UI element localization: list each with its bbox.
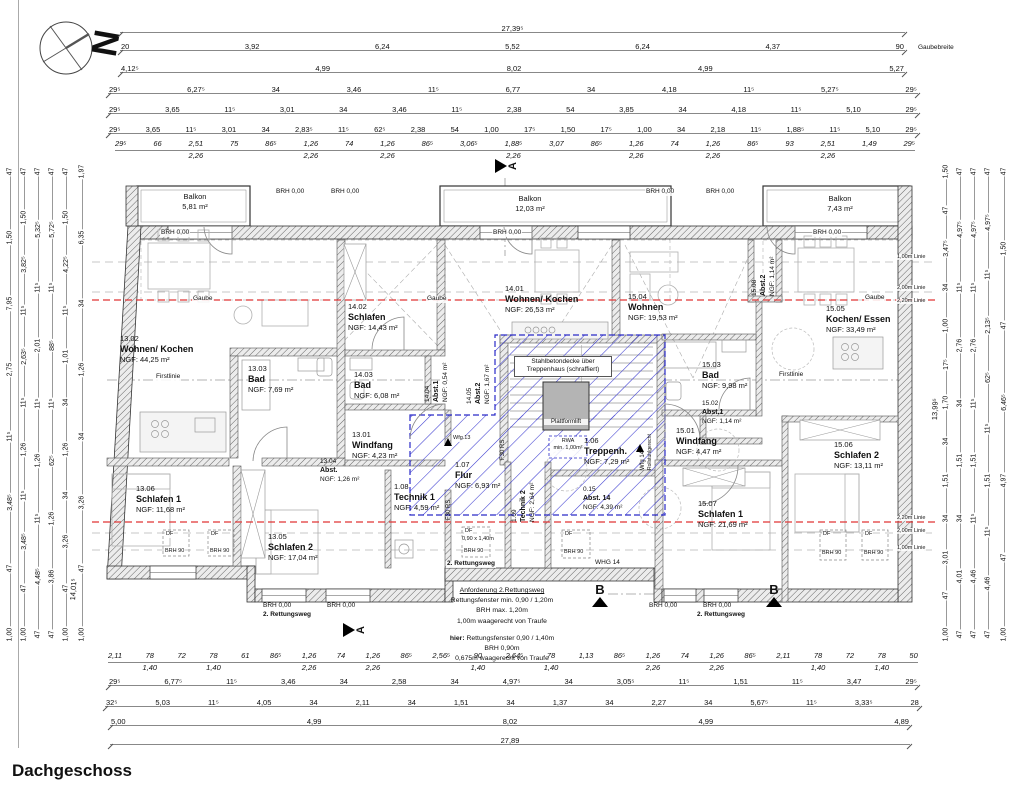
room-label-1506: 15.06Schlafen 2NGF: 13,11 m² bbox=[834, 440, 883, 471]
rettungsweg-label: 2. Rettungsweg bbox=[446, 561, 496, 568]
dim-col-left-1: 471,507,952,7511⁵3,48⁵471,00 bbox=[4, 168, 16, 638]
brh90-label: BRH 90 bbox=[563, 550, 584, 556]
df-size-label: 0,90 x 1,40m bbox=[461, 537, 495, 543]
firstlinie-tag: Firstlinie bbox=[155, 374, 181, 381]
room-label-1306: 13.06Schlafen 1NGF: 11,68 m² bbox=[136, 484, 185, 515]
section-triangle-icon bbox=[495, 159, 507, 173]
brh-tag: BRH 0,00 bbox=[492, 230, 522, 237]
dim-row-bottom-3: 32⁵5,0311⁵4,05342,11341,51341,37342,2734… bbox=[105, 695, 920, 707]
room-label-1504: 15.04WohnenNGF: 19,53 m² bbox=[628, 292, 678, 323]
whg14-label: WHG 14 bbox=[594, 560, 621, 567]
dim-row-top-3: 4,12⁵4,998,024,995,27 bbox=[120, 61, 905, 73]
room-label-technik2: 1.09Technik 2NGF: 2,64 m² bbox=[511, 483, 537, 522]
brh-tag: BRH 0,00 bbox=[645, 189, 675, 196]
brh90-label: BRH 90 bbox=[209, 549, 230, 555]
dim-row-top-overall: 27,39⁵ bbox=[120, 21, 905, 33]
brh-tag: BRH 0,00 bbox=[275, 189, 305, 196]
section-triangle-icon bbox=[766, 597, 782, 607]
brh-tag: BRH 0,00 bbox=[262, 603, 292, 610]
rettungsweg-label: 2. Rettungsweg bbox=[696, 612, 746, 619]
dim-col-right-1: 1,50473,47⁵341,0017⁵1,70341,51343,01471,… bbox=[940, 168, 952, 638]
df-label: DF bbox=[165, 532, 174, 538]
section-marker-a-bottom: A bbox=[343, 623, 365, 637]
floorplan-drawing bbox=[90, 175, 940, 650]
brh90-label: BRH 90 bbox=[164, 549, 185, 555]
brh-tag: BRH 0,00 bbox=[812, 230, 842, 237]
brh90-label: BRH 90 bbox=[863, 551, 884, 557]
brh-tag: BRH 0,00 bbox=[326, 603, 356, 610]
room-label-technik1: 1.08Technik 1NGF: 4,59 m² bbox=[394, 482, 439, 513]
dim-col-right-3: 474,97⁵11⁵2,7611⁵1,5111⁵4,4647 bbox=[968, 168, 980, 638]
room-label-1404: 14.04Abst.1NGF: 0,54 m² bbox=[424, 363, 450, 402]
room-label-1508: 15.08Abst.2NGF: 1,14 m² bbox=[751, 257, 777, 296]
dim-row-top-7: 29⁵662,512,267586⁵1,262,26741,262,2686⁵3… bbox=[115, 140, 915, 160]
dim-col-left-4: 475,72⁵11⁵88⁵11⁵62⁵1,263,8647 bbox=[46, 168, 58, 638]
room-label-abst14: 0.15Abst. 14NGF: 4,39 m² bbox=[583, 486, 622, 512]
df-label: DF bbox=[564, 532, 573, 538]
linie-100-label: 1,00m Linie bbox=[896, 545, 926, 551]
dim-row-top-6: 29⁵3,6511⁵3,01342,83⁵11⁵62⁵2,38541,0017⁵… bbox=[108, 122, 918, 134]
floorplan-sheet: { "title": "Dachgeschoss", "markers": {"… bbox=[0, 0, 1024, 790]
room-label-1401: 14.01Wohnen/ KochenNGF: 26,53 m² bbox=[505, 284, 578, 315]
section-marker-a-top: A bbox=[495, 159, 517, 173]
firstlinie-tag: Firstlinie bbox=[778, 372, 804, 379]
linie-200-label: 2,00m Linie bbox=[896, 528, 926, 534]
dim-row-top-4: 29⁵6,27⁵343,4611⁵6,77344,1811⁵5,27⁵29⁵ bbox=[108, 82, 918, 94]
linie-220-label: 2,20m Linie bbox=[896, 298, 926, 304]
section-marker-b-right: B bbox=[766, 583, 782, 609]
dim-col-left-6: 1,976,35341,26343,26471,00 bbox=[76, 168, 88, 638]
room-label-1507: 15.07Schlafen 1NGF: 21,69 m² bbox=[698, 499, 748, 530]
brh90-label: BRH 90 bbox=[821, 551, 842, 557]
linie-220-label: 2,20m Linie bbox=[896, 515, 926, 521]
room-label-1301: 13.01WindfangNGF: 4,23 m² bbox=[352, 430, 397, 461]
dim-row-top-2: 203,926,245,526,244,3790 bbox=[120, 39, 905, 51]
brh-tag: BRH 0,00 bbox=[330, 189, 360, 196]
room-label-1303: 13.03BadNGF: 7,69 m² bbox=[248, 364, 293, 395]
gaube-tag: Gaube bbox=[426, 296, 448, 303]
stahlbetondecke-note: Stahlbetondecke überTreppenhaus (schraff… bbox=[514, 356, 612, 377]
rettungsweg-label: 2. Rettungsweg bbox=[262, 612, 312, 619]
room-label-1502: 15.02Abst.1NGF: 1,14 m² bbox=[702, 400, 741, 426]
dim-row-top-5: 29⁵3,6511⁵3,01343,4611⁵2,38543,85344,181… bbox=[108, 102, 918, 114]
dim-row-bottom-1: 2,11781,4072781,406186⁵1,262,26741,262,2… bbox=[108, 652, 918, 672]
drawing-title: Dachgeschoss bbox=[12, 761, 132, 781]
df-label: DF bbox=[864, 532, 873, 538]
room-label-1304: 13.04Abst.NGF: 1,26 m² bbox=[320, 458, 359, 484]
wfg13-label: Wfg.13 bbox=[452, 436, 471, 442]
dim-col-left-3: 475,32⁵11⁵2,0111⁵1,2611⁵4,48⁵47 bbox=[32, 168, 44, 638]
df-label: DF bbox=[210, 532, 219, 538]
dim-col-right-4: 474,97⁵11⁵2,13⁵62⁵11⁵1,5111⁵4,4647 bbox=[982, 168, 994, 638]
df-label: DF bbox=[464, 529, 473, 535]
room-label-flur: 1.07FlurNGF: 6,93 m² bbox=[455, 460, 500, 491]
section-triangle-icon bbox=[343, 623, 355, 637]
rwa-label: RWAmin. 1,00m² bbox=[551, 438, 585, 452]
brh-tag: BRH 0,00 bbox=[702, 603, 732, 610]
room-label-1503: 15.03BadNGF: 9,98 m² bbox=[702, 360, 747, 391]
balcony-label: Balkon12,03 m² bbox=[488, 194, 572, 214]
wfg14-label: Wfg 14Rollstuhlgerecht bbox=[640, 434, 653, 470]
brh-tag: BRH 0,00 bbox=[705, 189, 735, 196]
room-label-1403: 14.03BadNGF: 6,08 m² bbox=[354, 370, 399, 401]
brh-tag: BRH 0,00 bbox=[648, 603, 678, 610]
gaube-tag: Gaube bbox=[192, 296, 214, 303]
linie-100-label: 1,00m Linie bbox=[896, 254, 926, 260]
f30rs-label: F30 RS bbox=[446, 500, 453, 520]
plattformlift-label: Plattformlift bbox=[544, 419, 588, 425]
balcony-label: Balkon7,43 m² bbox=[798, 194, 882, 214]
dim-row-bottom-4: 5,004,998,024,994,89 bbox=[110, 714, 910, 726]
linie-200-label: 2,00m Linie bbox=[896, 285, 926, 291]
room-label-1505: 15.05Kochen/ EssenNGF: 33,49 m² bbox=[826, 304, 891, 335]
room-label-1402: 14.02SchlafenNGF: 14,43 m² bbox=[348, 302, 398, 333]
dim-left-diagonal: 14,01⁵ bbox=[68, 578, 79, 600]
room-label-1501: 15.01WindfangNGF: 4,47 m² bbox=[676, 426, 721, 457]
df-label: DF bbox=[822, 532, 831, 538]
gaubebreite-label: Gaubebreite bbox=[918, 44, 954, 51]
room-label-treppenhaus: 1.06Treppenh.NGF: 7,29 m² bbox=[584, 436, 629, 467]
room-label-1302: 13.02Wohnen/ KochenNGF: 44,25 m² bbox=[120, 334, 193, 365]
dim-col-right-2: 474,97⁵11⁵2,76341,51344,0147 bbox=[954, 168, 966, 638]
dim-col-left-2: 471,503,82⁵11⁵2,63⁵11⁵1,2611⁵3,48⁵471,00 bbox=[18, 168, 30, 638]
f30rs-label: F30 RS bbox=[500, 440, 507, 460]
dim-col-right-5: 471,50476,46⁵4,97471,00 bbox=[998, 168, 1010, 638]
room-label-1405: 14.05Abst.2NGF: 1,67 m² bbox=[466, 365, 492, 404]
dim-col-left-5: 471,504,22⁵11⁵1,01341,26343,26471,00 bbox=[60, 168, 72, 638]
balcony-label: Balkon5,81 m² bbox=[153, 192, 237, 212]
dim-row-bottom-overall: 27,89 bbox=[110, 733, 910, 745]
brh90-label: BRH 90 bbox=[463, 549, 484, 555]
room-label-1305: 13.05Schlafen 2NGF: 17,04 m² bbox=[268, 532, 318, 563]
gaube-tag: Gaube bbox=[864, 295, 886, 302]
brh-tag: BRH 0,00 bbox=[160, 230, 190, 237]
dim-row-bottom-2: 29⁵6,77⁵11⁵3,46342,58344,97⁵343,05⁵11⁵1,… bbox=[108, 674, 918, 686]
